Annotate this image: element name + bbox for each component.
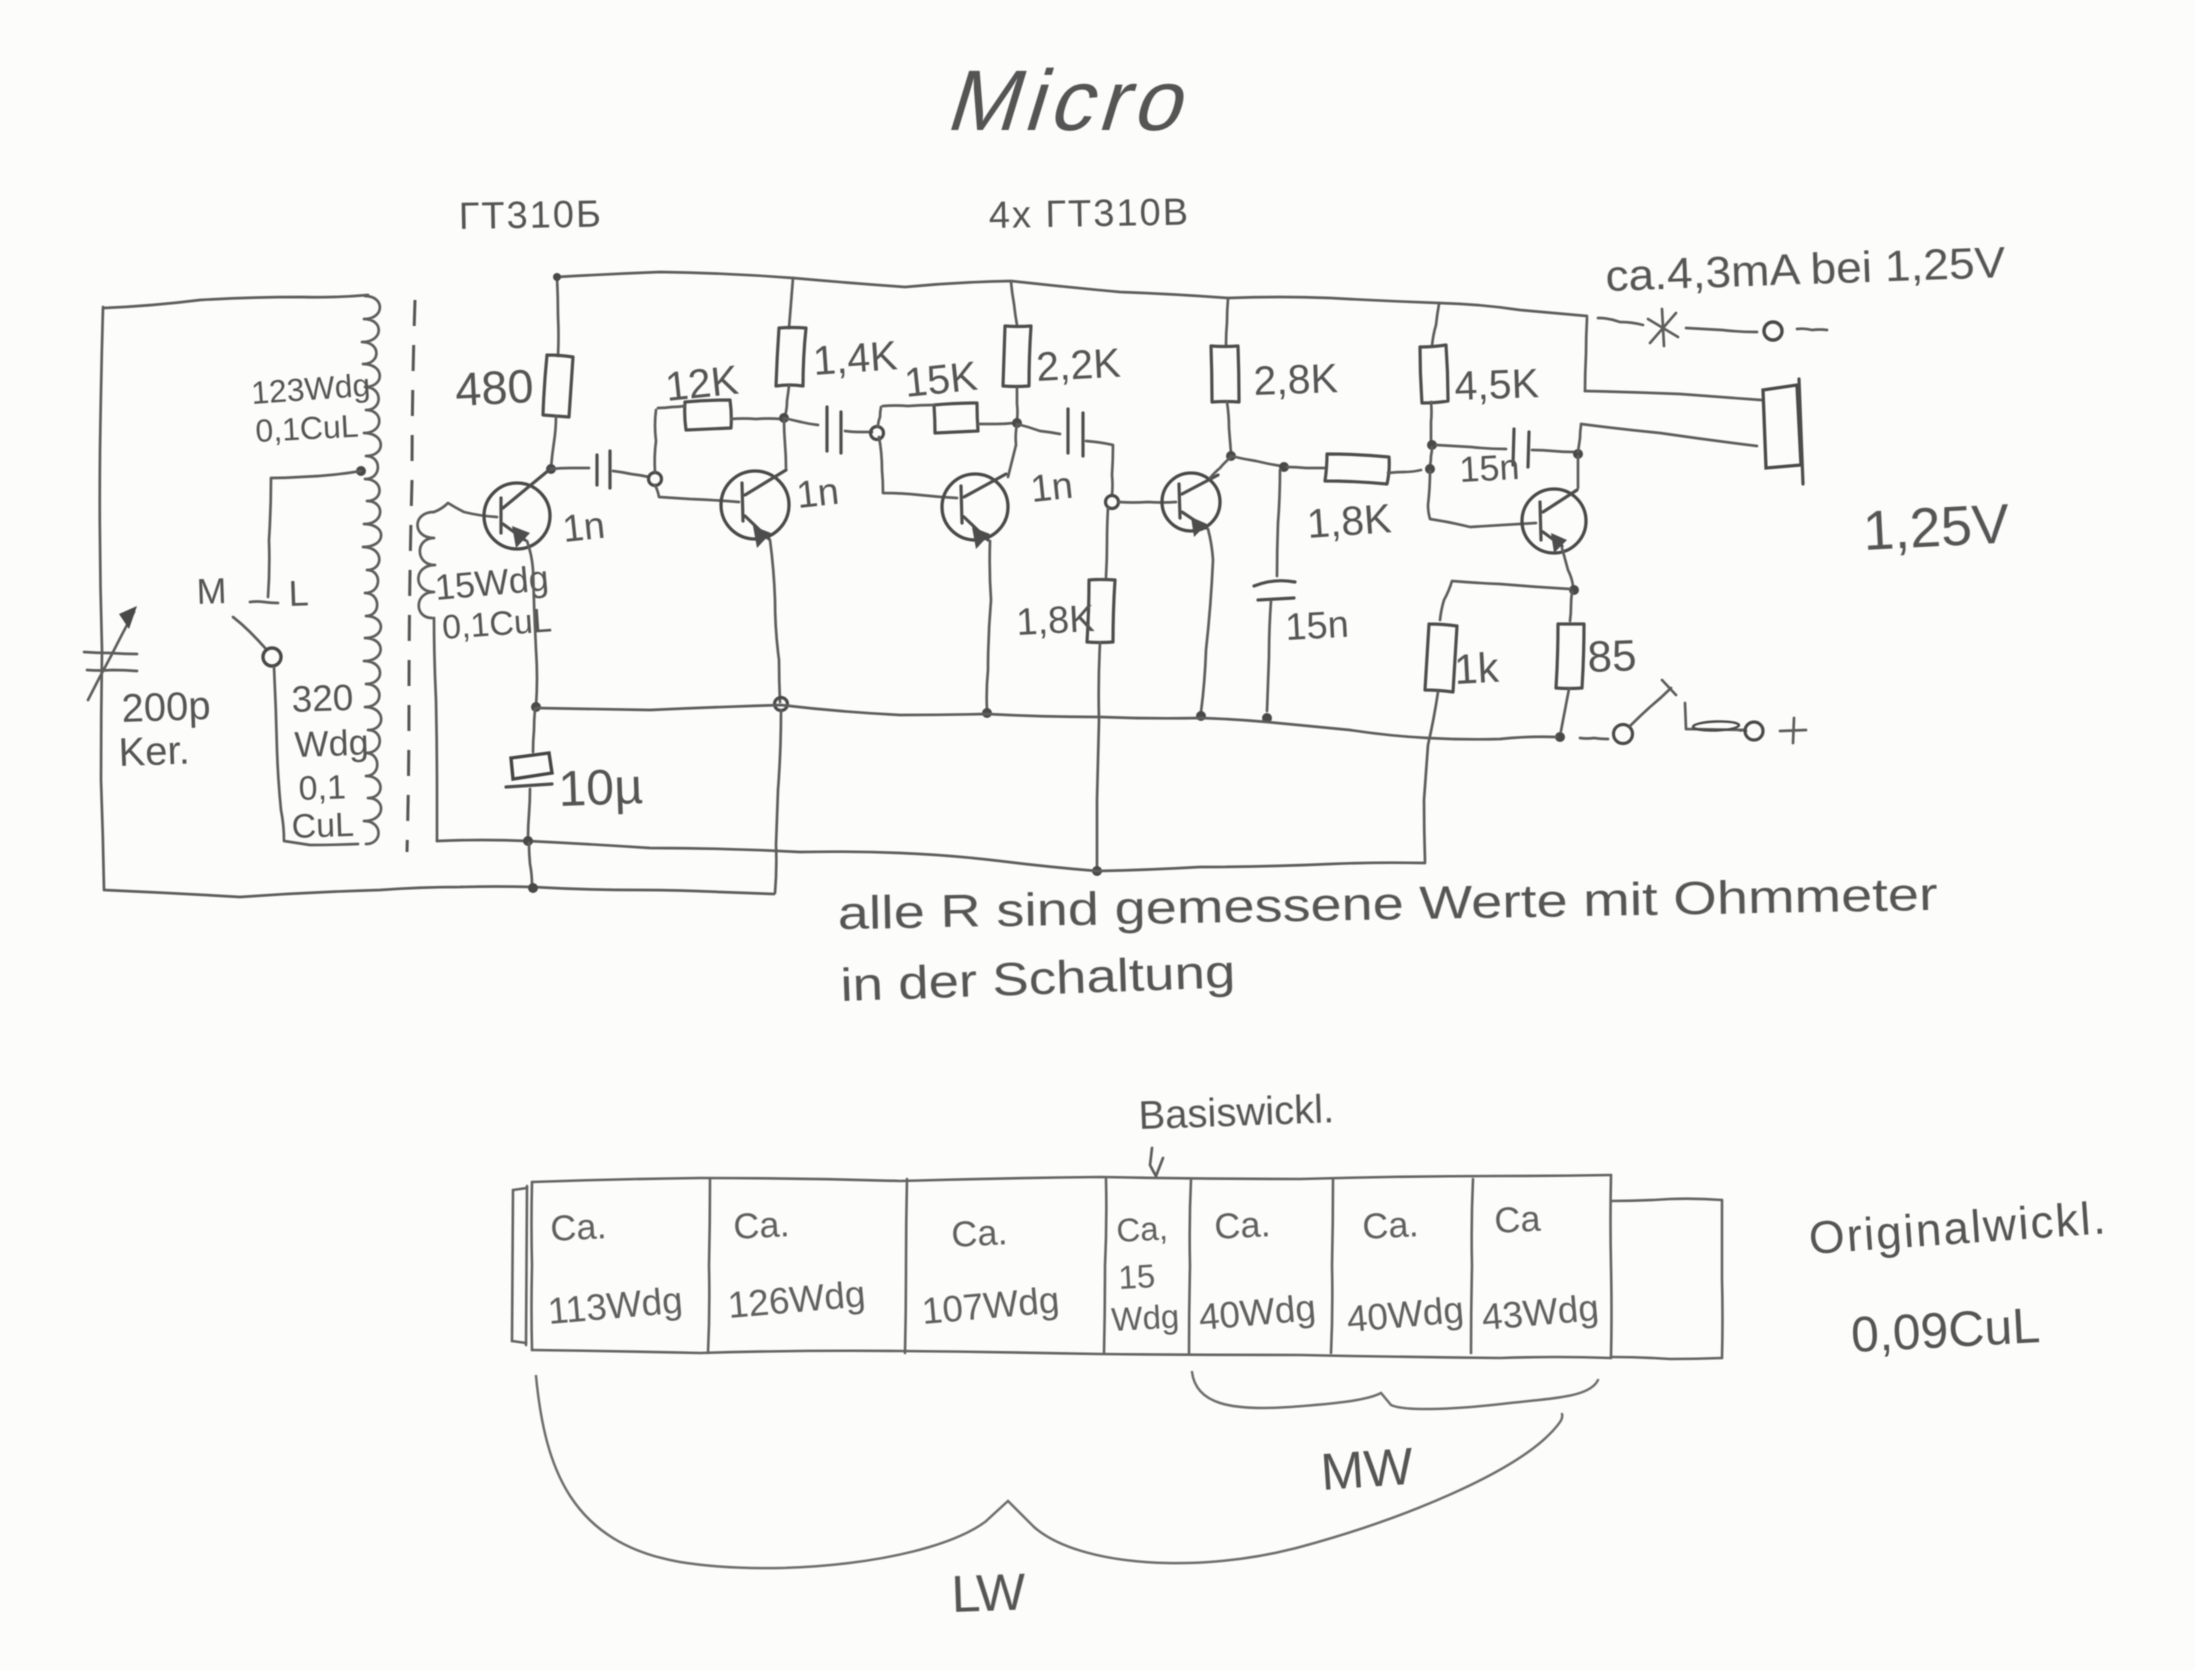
svg-text:320: 320 [291, 677, 354, 720]
svg-text:Wdg: Wdg [1110, 1297, 1180, 1338]
svg-text:Ca.: Ca. [1361, 1203, 1419, 1247]
svg-text:Ker.: Ker. [118, 729, 191, 775]
svg-text:12K: 12K [663, 357, 740, 410]
svg-text:4x ГТ310В: 4x ГТ310В [988, 191, 1190, 237]
svg-text:Ca: Ca [1493, 1198, 1542, 1241]
svg-text:4,5K: 4,5K [1454, 360, 1540, 409]
svg-text:1k: 1k [1453, 644, 1501, 693]
svg-text:1n: 1n [1029, 465, 1075, 511]
svg-text:Micro: Micro [938, 52, 1208, 149]
svg-text:0,1: 0,1 [298, 768, 347, 808]
svg-text:200p: 200p [121, 684, 211, 731]
svg-text:Ca.: Ca. [732, 1203, 790, 1247]
svg-text:15n: 15n [1284, 604, 1350, 649]
svg-text:15: 15 [1117, 1257, 1156, 1296]
svg-text:L: L [288, 572, 309, 614]
svg-text:1n: 1n [795, 471, 841, 517]
svg-text:0,1CuL: 0,1CuL [254, 408, 359, 449]
svg-text:Ca.: Ca. [1213, 1203, 1271, 1247]
svg-text:15n: 15n [1458, 446, 1520, 490]
svg-text:CuL: CuL [291, 806, 355, 846]
svg-text:0,09CuL: 0,09CuL [1850, 1297, 2042, 1363]
svg-text:Ca,: Ca, [1115, 1209, 1168, 1249]
svg-text:15K: 15K [902, 353, 979, 406]
svg-text:MW: MW [1319, 1438, 1415, 1502]
svg-text:1,8K: 1,8K [1015, 598, 1095, 644]
svg-text:ГТ310Б: ГТ310Б [458, 193, 603, 238]
svg-text:85: 85 [1587, 631, 1638, 682]
svg-text:2,2K: 2,2K [1035, 340, 1122, 390]
svg-text:2,8K: 2,8K [1253, 355, 1339, 404]
svg-text:Ca.: Ca. [549, 1205, 607, 1249]
svg-text:1,25V: 1,25V [1861, 491, 2011, 562]
svg-text:1,8K: 1,8K [1305, 495, 1392, 547]
svg-text:Ca.: Ca. [950, 1211, 1008, 1255]
svg-text:LW: LW [950, 1563, 1026, 1624]
svg-text:1n: 1n [561, 505, 607, 551]
svg-text:480: 480 [454, 359, 535, 416]
svg-text:1,4K: 1,4K [811, 332, 898, 384]
svg-text:10µ: 10µ [557, 758, 643, 817]
svg-text:Basiswickl.: Basiswickl. [1138, 1087, 1335, 1138]
svg-text:M: M [196, 570, 227, 612]
svg-text:Wdg: Wdg [294, 721, 369, 765]
